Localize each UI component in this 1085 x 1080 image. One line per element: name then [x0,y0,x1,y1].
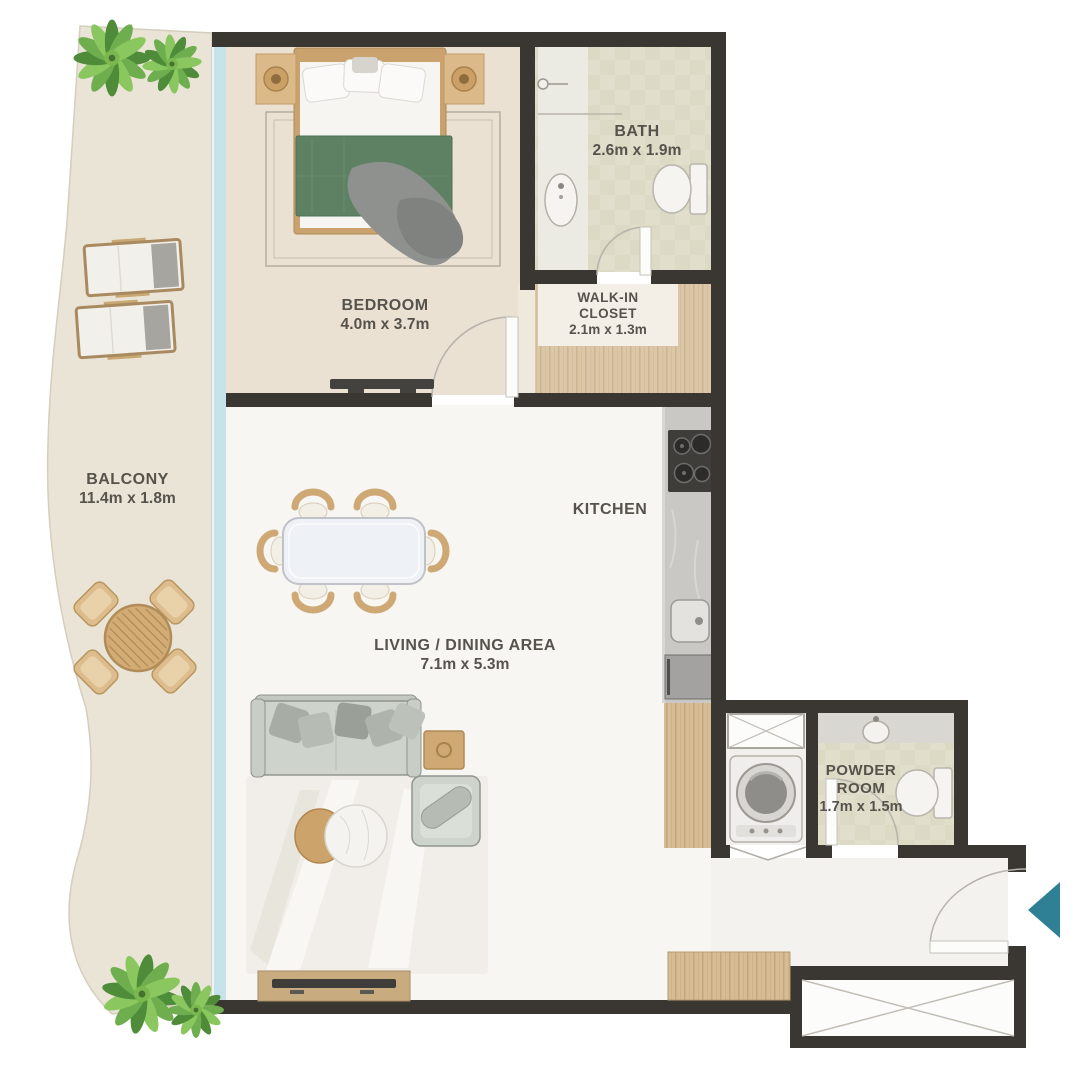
living-dining-label: LIVING / DINING AREA 7.1m x 5.3m [340,636,590,674]
balcony-dimensions: 11.4m x 1.8m [45,490,210,509]
refrigerator-icon [665,655,712,699]
side-table [424,731,464,769]
living-tv-console [258,971,410,1001]
balcony-name: BALCONY [45,470,210,490]
powder-name-line1: POWDER [796,762,926,780]
utility-cabinet [728,714,804,748]
kitchen-counter [662,407,712,848]
kitchen-sink-icon [671,600,709,642]
powder-room-label: POWDER ROOM 1.7m x 1.5m [796,762,926,816]
powder-name-line2: ROOM [796,780,926,798]
sofa [251,695,427,777]
storage-closet [802,980,1014,1036]
bedroom-name: BEDROOM [295,296,475,316]
balcony-label: BALCONY 11.4m x 1.8m [45,470,210,508]
bath-dimensions: 2.6m x 1.9m [557,142,717,161]
sun-lounger [84,235,184,300]
kitchen-name: KITCHEN [540,500,680,520]
washing-machine-icon [730,756,802,842]
walk-in-closet-label: WALK-IN CLOSET 2.1m x 1.3m [538,284,678,346]
bedroom-dimensions: 4.0m x 3.7m [295,316,475,335]
dining-table [283,518,425,584]
bath-name: BATH [557,122,717,142]
nightstand-left [256,54,296,104]
balcony-area [48,26,228,1014]
balcony-floor [48,26,212,1014]
bath-sink-icon [545,174,577,226]
glass-edge [212,34,214,1002]
entry-wardrobe [668,952,790,1000]
bath-label: BATH 2.6m x 1.9m [557,122,717,160]
living-dining-name: LIVING / DINING AREA [340,636,590,656]
entrance-arrow-icon [1028,882,1060,938]
kitchen-label: KITCHEN [540,500,680,520]
floor-plan: BALCONY 11.4m x 1.8m BEDROOM 4.0m x 3.7m… [0,0,1085,1080]
armchair [412,776,480,846]
closet-dimensions: 2.1m x 1.3m [538,322,678,338]
cooktop-icon [668,430,712,492]
floor-plan-graphic [0,0,1085,1080]
closet-name-line2: CLOSET [538,306,678,322]
coffee-tables [295,805,387,867]
powder-dimensions: 1.7m x 1.5m [796,799,926,817]
living-dining-dimensions: 7.1m x 5.3m [340,656,590,675]
glass-wall [212,34,228,1002]
powder-sink-icon [818,713,954,743]
sun-lounger [76,297,176,362]
double-bed [294,48,463,265]
closet-name-line1: WALK-IN [538,290,678,306]
bedroom-label: BEDROOM 4.0m x 3.7m [295,296,475,334]
bath-toilet-icon [653,164,707,214]
kitchen-tall-cabinet [664,703,712,848]
nightstand-right [444,54,484,104]
